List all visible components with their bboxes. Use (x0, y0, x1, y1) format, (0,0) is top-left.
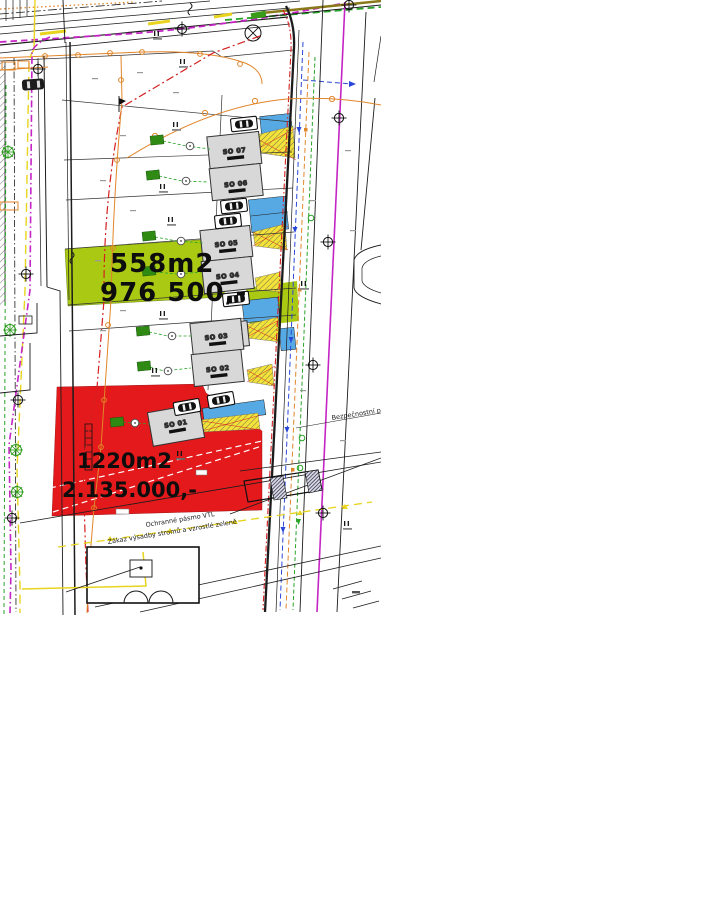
road-north (0, 0, 381, 84)
car-icon (230, 116, 257, 132)
survey-point (342, 0, 357, 13)
pipeline-crossing-hatch (305, 470, 322, 493)
svg-text:II: II (159, 310, 166, 318)
side-road-junction (354, 245, 381, 304)
red-plot-area-label: 1220m2 (77, 449, 172, 473)
break-squiggle (188, 3, 192, 15)
svg-text:II: II (172, 121, 179, 129)
tree-symbol (9, 443, 23, 457)
svg-text:II: II (343, 520, 350, 528)
outbuilding-southwest (22, 547, 199, 603)
flag-symbol (119, 98, 126, 105)
pole-symbol: II (159, 310, 168, 320)
well-circle (182, 177, 190, 185)
survey-point (306, 358, 321, 373)
green-plot-price-label: 976 500,- (100, 278, 247, 308)
car-icon (214, 213, 241, 229)
svg-text:II: II (176, 450, 183, 458)
pole-symbol: II (151, 367, 160, 377)
survey-point (31, 62, 46, 77)
svg-text:II: II (167, 216, 174, 224)
safety-zone-label: Bezpečnostní pá (331, 406, 381, 422)
green-plot-area-label: 558m2 (110, 249, 214, 279)
red-plot-price-label: 2.135.000,- (62, 478, 197, 502)
pole-symbol: II (343, 520, 352, 530)
embankment-hatch (0, 62, 5, 305)
pole-symbol: II (159, 183, 168, 193)
pipeline-crossing-hatch (270, 476, 287, 500)
tiny-label-box (116, 509, 129, 514)
well-circle (186, 142, 194, 150)
svg-text:II: II (179, 58, 186, 66)
tree-symbol (10, 485, 24, 499)
car-icon (220, 198, 247, 214)
pole-symbol: II (300, 280, 309, 290)
site-plan-image: Ochranné pásmo VTL Zákaz výsadby stromů … (0, 0, 381, 615)
well-circle (131, 419, 139, 427)
hatch-zone (247, 364, 274, 386)
pole-symbol: II (167, 216, 176, 226)
site-plan-map: Ochranné pásmo VTL Zákaz výsadby stromů … (0, 0, 381, 615)
pole-symbol: II (179, 58, 188, 68)
screenshot-canvas: Ochranné pásmo VTL Zákaz výsadby stromů … (0, 0, 712, 921)
well-circle (168, 332, 176, 340)
survey-point (5, 511, 20, 526)
tiny-label-box (196, 470, 207, 475)
well-circle (177, 237, 185, 245)
utility-orange-line (87, 56, 122, 613)
pole-symbol: II (172, 121, 181, 131)
tree-symbol (1, 145, 15, 159)
survey-point (332, 111, 347, 126)
parked-car-icon (22, 78, 45, 91)
survey-point (11, 393, 26, 408)
east-annotations: Bezpečnostní pá (296, 406, 381, 428)
svg-text:II: II (151, 367, 158, 375)
parking-pad (279, 327, 296, 350)
svg-text:II: II (159, 183, 166, 191)
svg-text:II: II (300, 280, 307, 288)
survey-point (19, 267, 34, 282)
well-circle (164, 367, 172, 375)
svg-text:II: II (153, 30, 160, 38)
